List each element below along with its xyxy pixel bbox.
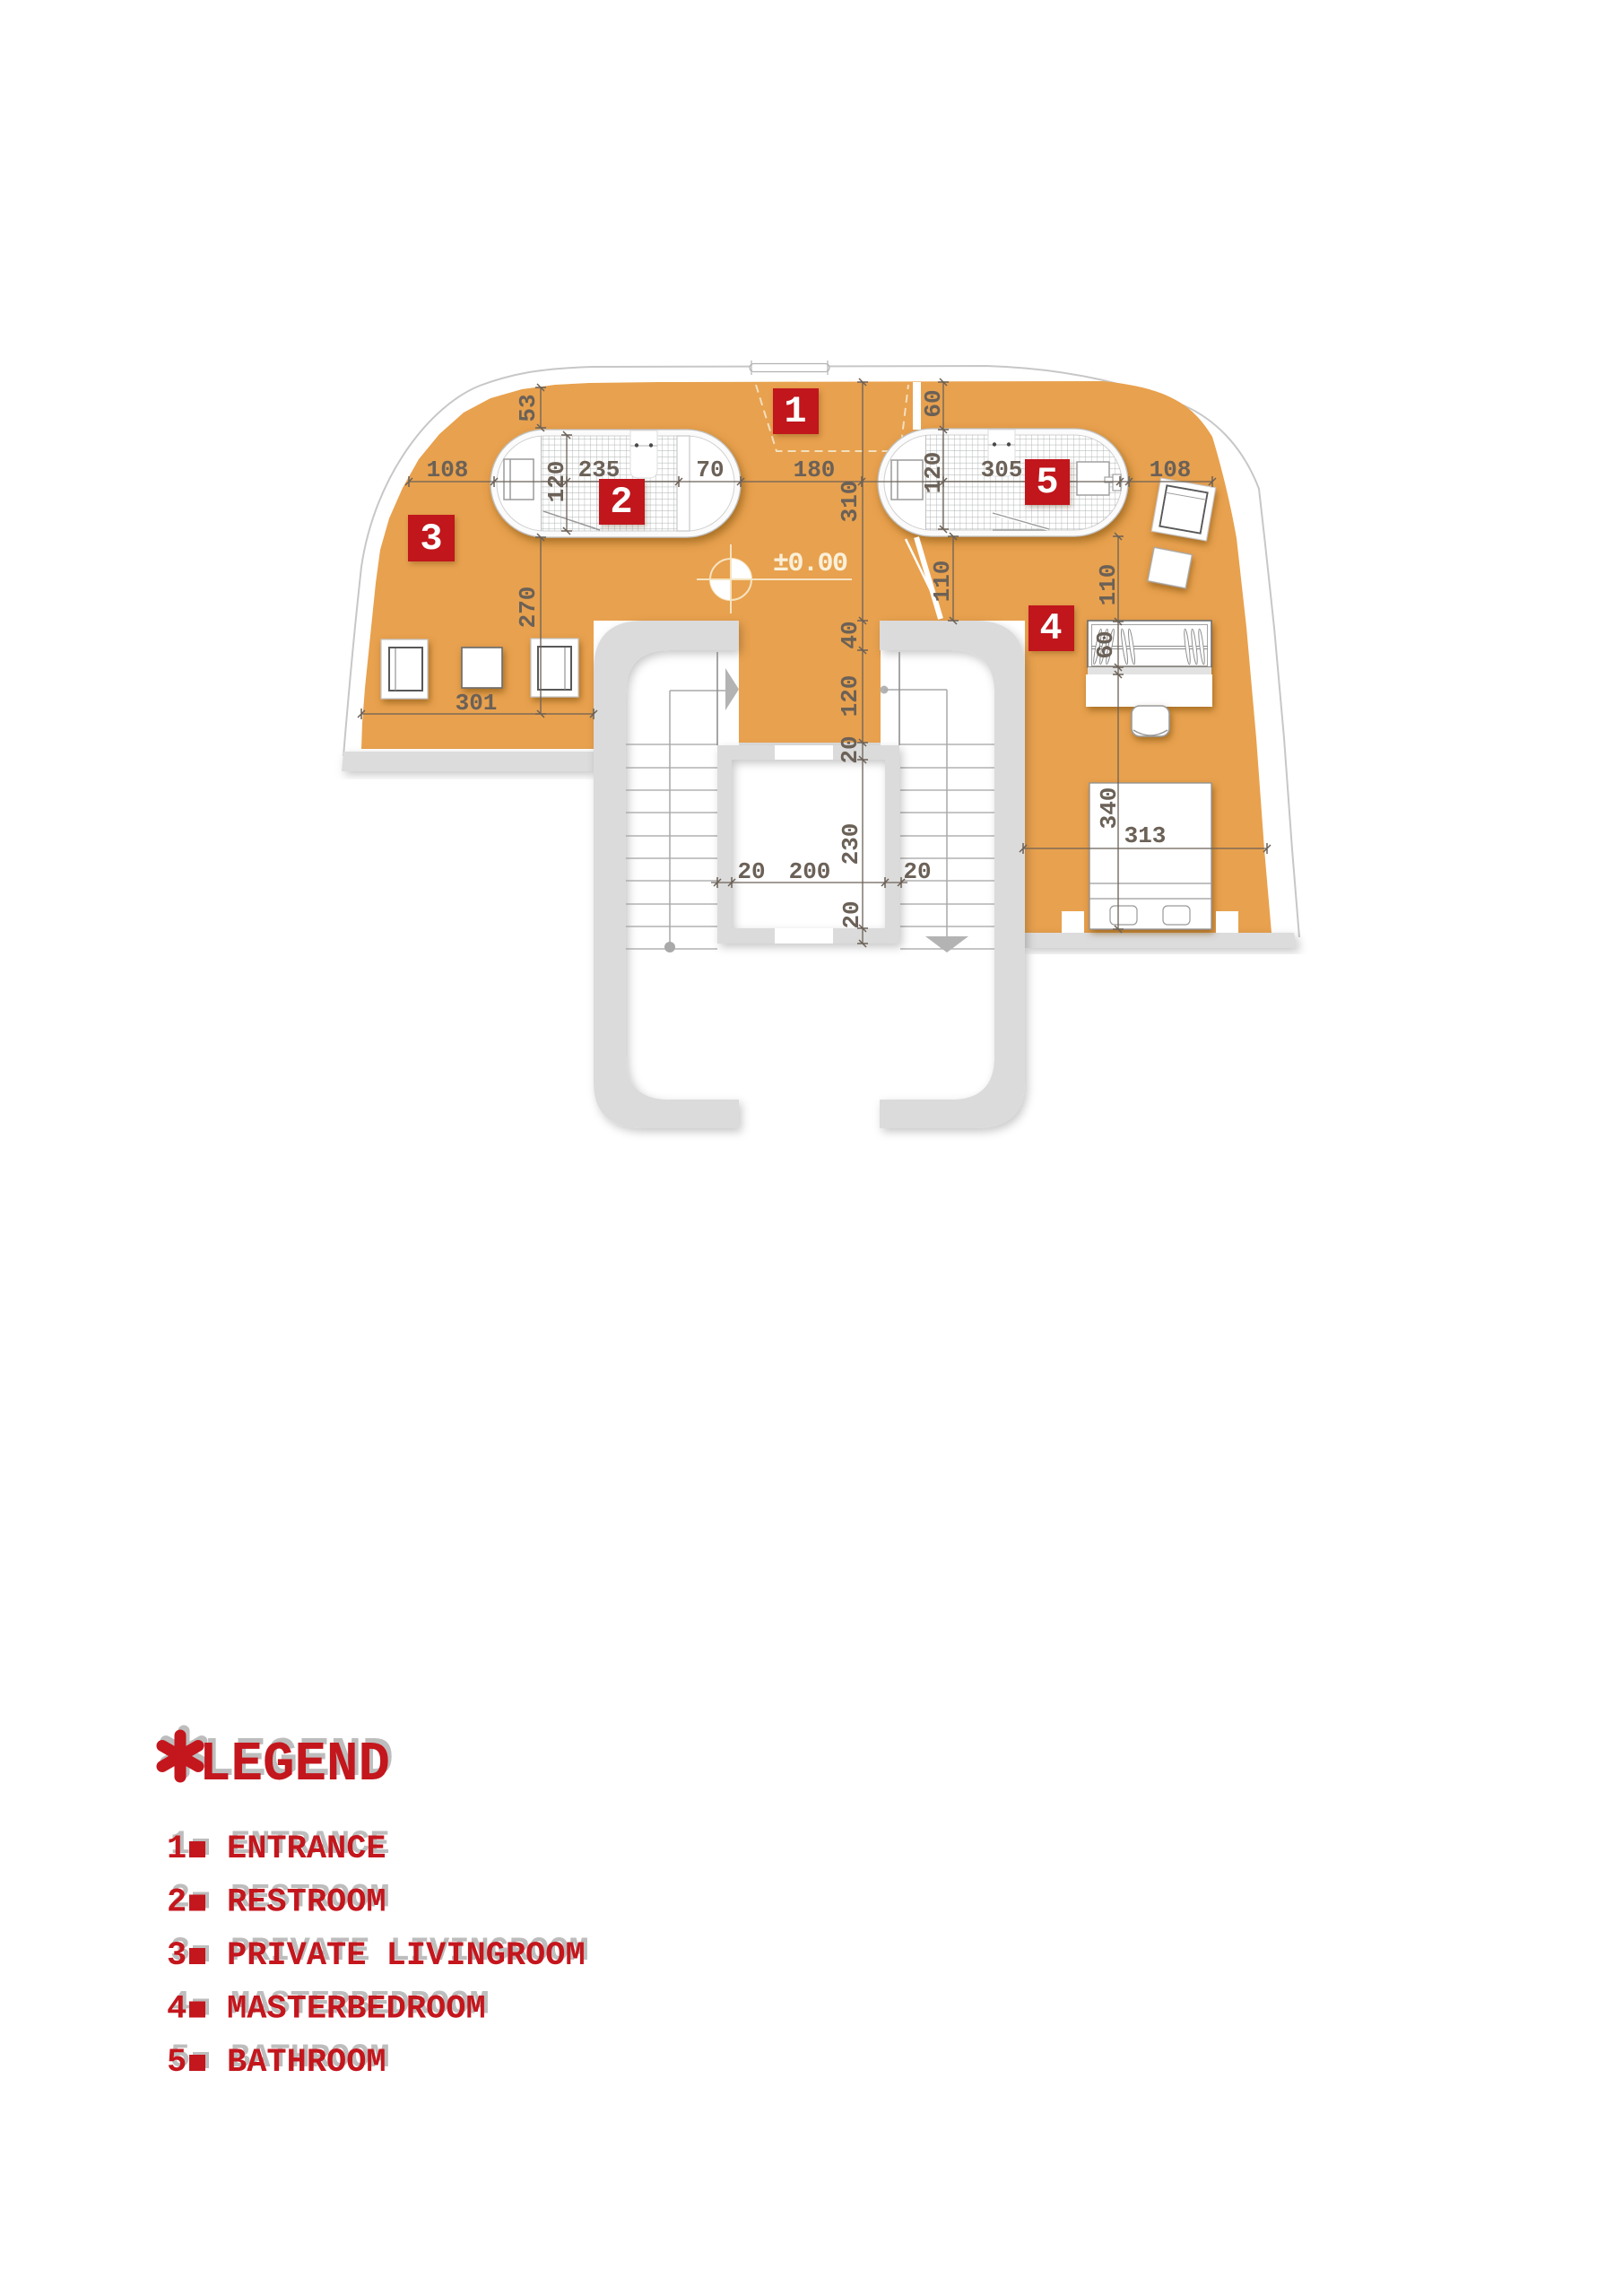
svg-text:108: 108 — [1150, 457, 1192, 483]
svg-text:20: 20 — [837, 735, 864, 763]
svg-text:BATHROOM: BATHROOM — [227, 2044, 386, 2082]
svg-text:120: 120 — [920, 452, 947, 494]
svg-text:4: 4 — [1039, 607, 1062, 650]
svg-text:2: 2 — [610, 481, 632, 524]
svg-text:5: 5 — [1036, 461, 1058, 504]
svg-text:340: 340 — [1096, 787, 1123, 830]
svg-text:5: 5 — [167, 2044, 187, 2082]
svg-text:301: 301 — [456, 690, 498, 717]
svg-text:1: 1 — [784, 390, 806, 433]
svg-text:MASTERBEDROOM: MASTERBEDROOM — [227, 1991, 486, 2029]
svg-text:120: 120 — [837, 675, 864, 717]
svg-text:110: 110 — [929, 561, 956, 603]
svg-text:230: 230 — [838, 823, 864, 865]
svg-text:180: 180 — [794, 457, 836, 483]
svg-text:1: 1 — [167, 1831, 187, 1868]
svg-text:±0.00: ±0.00 — [773, 549, 848, 579]
svg-text:120: 120 — [543, 461, 570, 503]
svg-text:60: 60 — [1092, 631, 1119, 658]
svg-text:200: 200 — [789, 858, 831, 885]
svg-text:60: 60 — [920, 389, 947, 417]
svg-text:20: 20 — [903, 858, 931, 885]
svg-text:310: 310 — [837, 481, 864, 523]
svg-text:313: 313 — [1124, 822, 1167, 849]
svg-text:RESTROOM: RESTROOM — [227, 1884, 386, 1922]
svg-text:70: 70 — [696, 457, 724, 483]
svg-text:3: 3 — [420, 517, 442, 561]
svg-text:4: 4 — [167, 1991, 187, 2029]
svg-text:270: 270 — [515, 587, 542, 629]
svg-text:40: 40 — [837, 621, 864, 648]
svg-text:3: 3 — [167, 1937, 187, 1975]
svg-text:108: 108 — [427, 457, 469, 483]
svg-text:20: 20 — [838, 900, 865, 928]
svg-text:305: 305 — [981, 457, 1023, 483]
svg-text:53: 53 — [515, 394, 542, 422]
svg-text:PRIVATE LIVINGROOM: PRIVATE LIVINGROOM — [227, 1937, 586, 1975]
svg-text:20: 20 — [737, 858, 765, 885]
svg-text:ENTRANCE: ENTRANCE — [227, 1831, 386, 1868]
svg-text:LEGEND: LEGEND — [199, 1733, 390, 1796]
svg-text:110: 110 — [1095, 564, 1122, 606]
svg-text:2: 2 — [167, 1884, 187, 1922]
